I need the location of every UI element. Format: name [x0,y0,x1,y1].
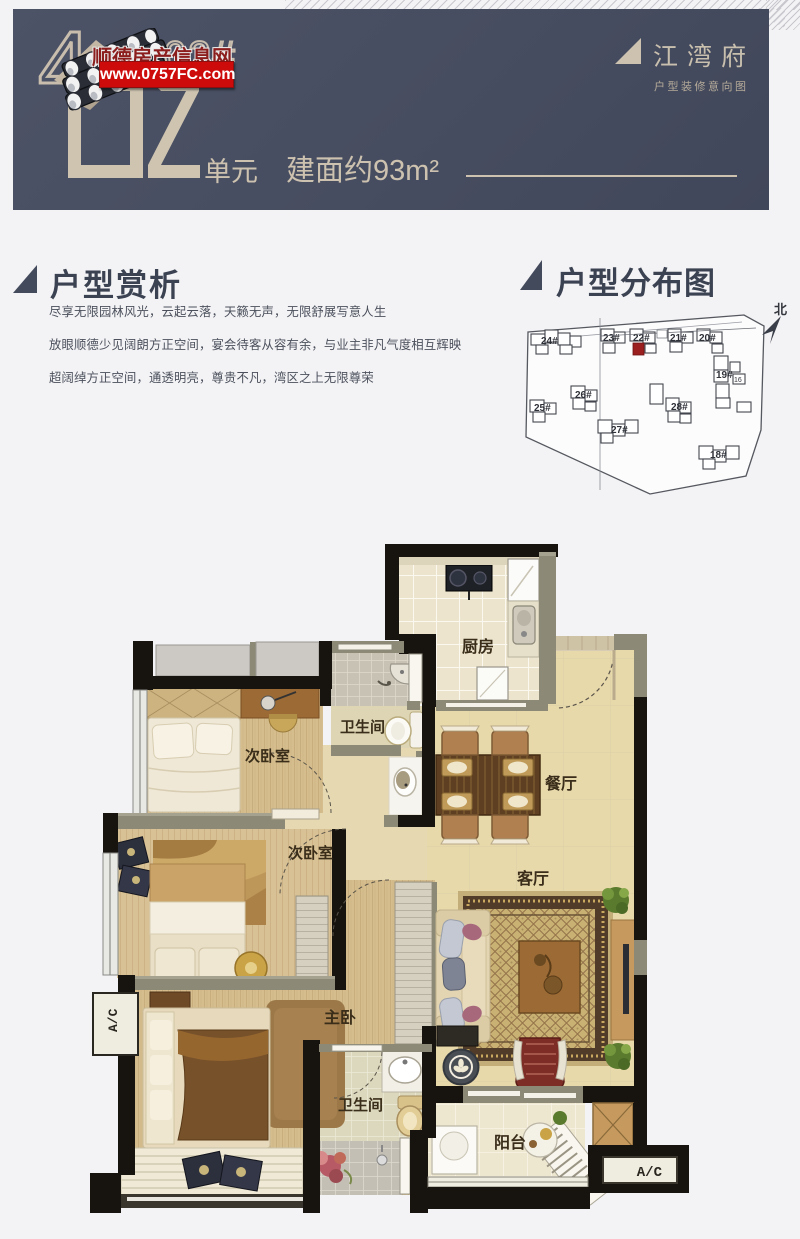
svg-text:客厅: 客厅 [517,869,549,888]
svg-text:卫生间: 卫生间 [338,1096,383,1114]
svg-text:主卧: 主卧 [324,1008,356,1027]
svg-text:次卧室: 次卧室 [288,844,333,862]
svg-text:A/C: A/C [637,1165,663,1181]
svg-text:餐厅: 餐厅 [544,774,577,793]
svg-text:卫生间: 卫生间 [340,718,385,736]
svg-text:次卧室: 次卧室 [245,747,290,765]
svg-text:阳台: 阳台 [494,1133,526,1152]
svg-text:A/C: A/C [106,1008,121,1032]
svg-text:厨房: 厨房 [462,637,494,656]
